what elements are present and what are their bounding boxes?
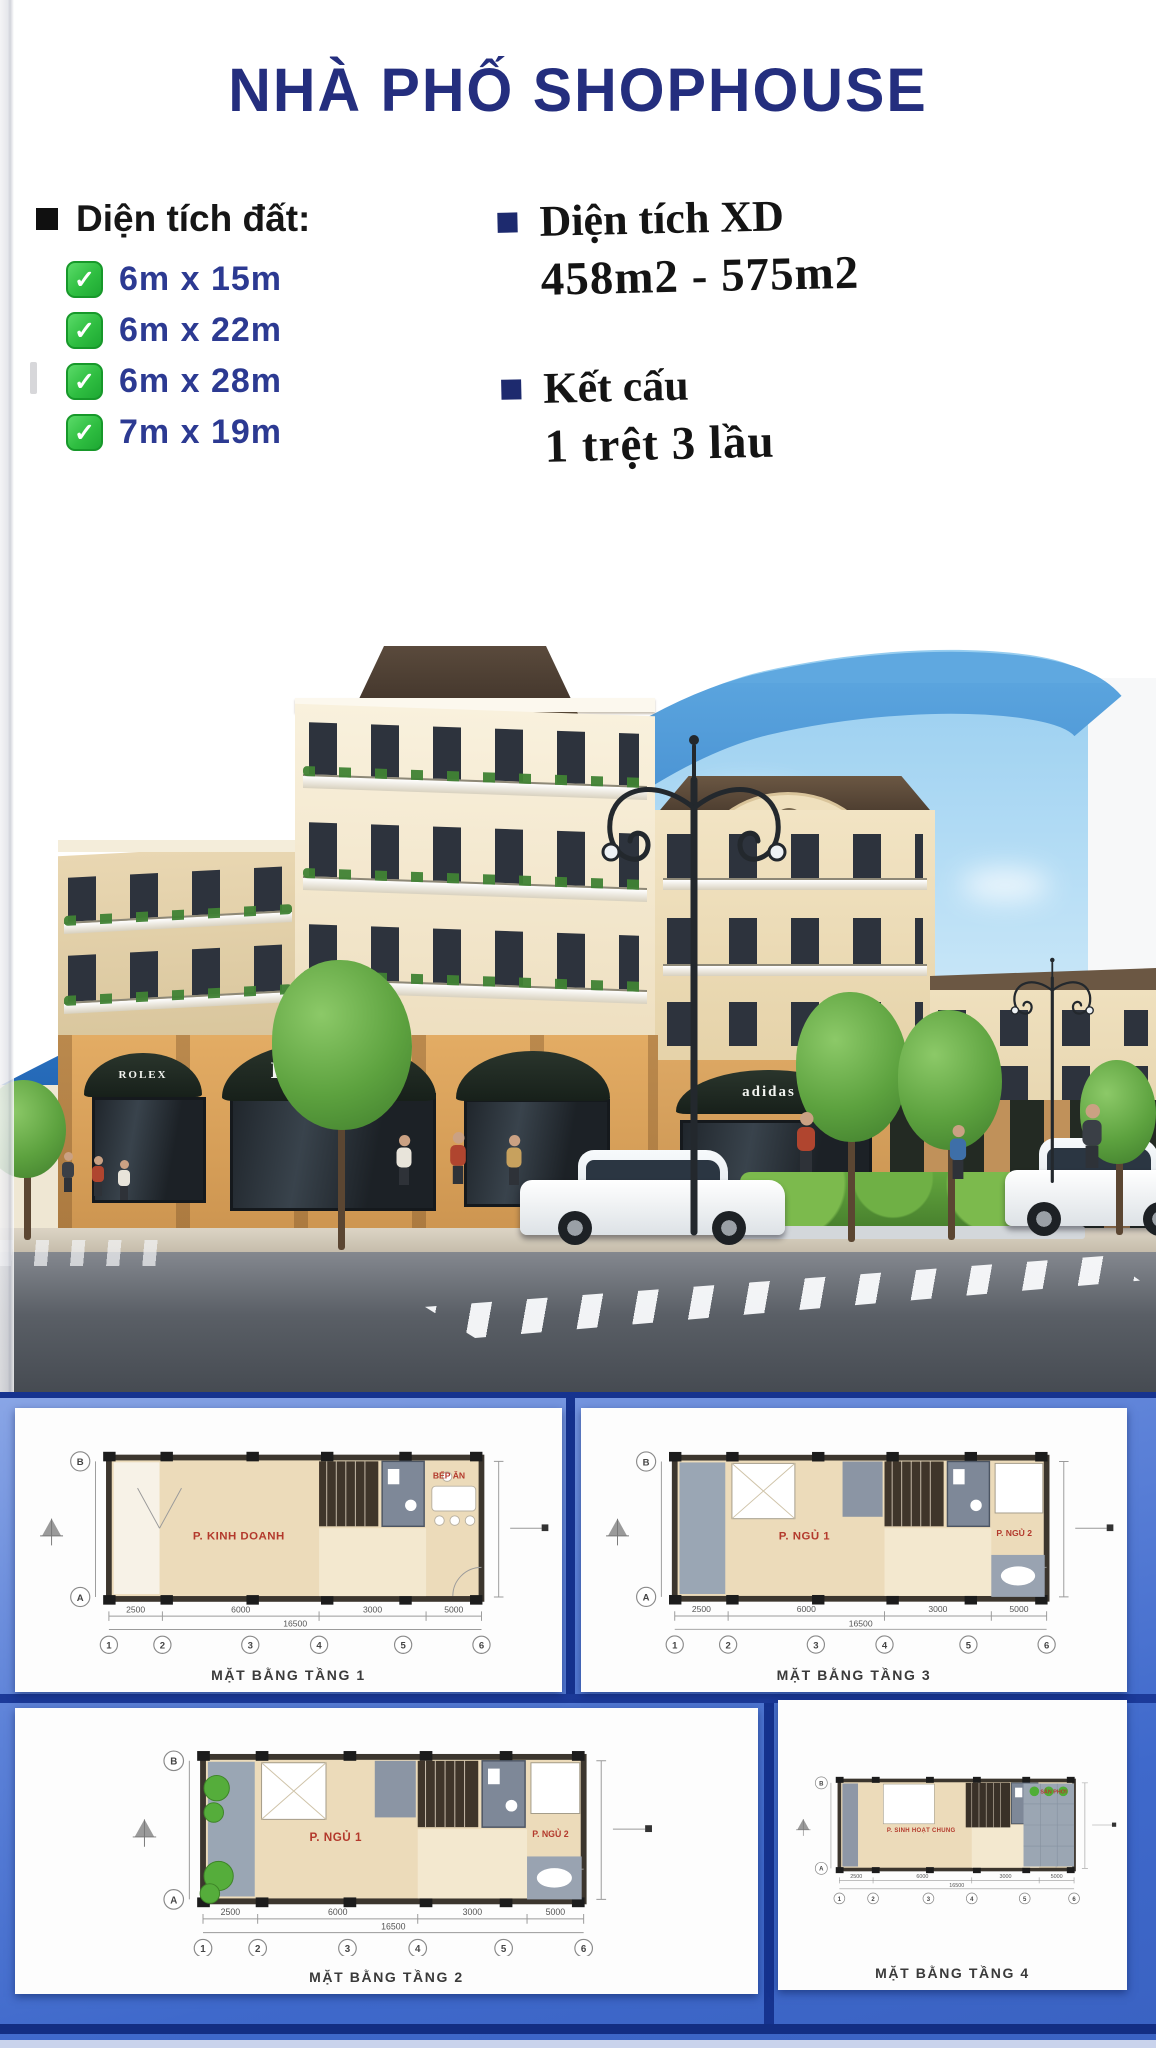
pedestrian [1082, 1104, 1101, 1168]
land-area-block: Diện tích đất: ✓ 6m x 15m ✓ 6m x 22m ✓ 6… [36, 198, 466, 458]
white-limousine [520, 1140, 785, 1245]
svg-text:B: B [643, 1457, 650, 1468]
construction-heading: Diện tích XD [539, 190, 785, 247]
structure-heading: Kết cấu [543, 360, 690, 414]
adidas-sign: adidas [742, 1084, 796, 1101]
svg-text:3000: 3000 [928, 1604, 947, 1614]
construction-heading-row: Diện tích XD [497, 183, 1098, 248]
svg-text:5000: 5000 [546, 1907, 566, 1917]
square-bullet-icon [36, 208, 58, 230]
flyer-page: NHÀ PHỐ SHOPHOUSE Diện tích đất: ✓ 6m x … [0, 0, 1156, 2048]
svg-text:A: A [170, 1895, 177, 1906]
pedestrian [507, 1135, 522, 1185]
svg-text:A: A [819, 1867, 824, 1873]
svg-text:6: 6 [581, 1944, 587, 1955]
svg-text:5000: 5000 [1009, 1604, 1028, 1614]
square-bullet-icon [497, 212, 517, 232]
svg-text:16500: 16500 [283, 1619, 307, 1629]
floor-plan-panel-t2: B A [15, 1708, 758, 1994]
svg-text:A: A [77, 1593, 84, 1604]
compass-icon [796, 1819, 810, 1836]
svg-text:3: 3 [248, 1641, 253, 1652]
land-size-value: 6m x 22m [119, 311, 282, 350]
divider-line [764, 1703, 774, 2030]
floor-plan-caption: MẶT BẰNG TẦNG 1 [15, 1667, 562, 1683]
render-photo: ROLEX ROLEX adidas [0, 540, 1156, 1392]
check-icon: ✓ [66, 312, 103, 349]
svg-text:BẾP ĂN: BẾP ĂN [433, 1471, 465, 1481]
svg-text:3000: 3000 [463, 1907, 483, 1917]
floor-plan-caption: MẶT BẰNG TẦNG 2 [15, 1969, 758, 1985]
svg-text:6000: 6000 [916, 1874, 928, 1880]
svg-text:5: 5 [400, 1641, 406, 1652]
svg-text:P. NGỦ 1: P. NGỦ 1 [779, 1530, 830, 1543]
svg-text:3: 3 [345, 1944, 351, 1955]
svg-text:B: B [819, 1781, 824, 1787]
svg-text:4: 4 [316, 1641, 322, 1652]
land-area-heading-row: Diện tích đất: [36, 198, 466, 240]
land-size-value: 6m x 28m [119, 362, 282, 401]
floor-plan-panel-t4: B A [778, 1700, 1127, 1990]
floor-plan-caption: MẶT BẰNG TẦNG 4 [778, 1965, 1127, 1981]
check-icon: ✓ [66, 363, 103, 400]
pedestrian [950, 1125, 966, 1179]
svg-text:2: 2 [725, 1640, 730, 1651]
svg-text:1: 1 [106, 1641, 112, 1652]
svg-text:5: 5 [501, 1944, 507, 1955]
divider-line [0, 2024, 1156, 2034]
svg-text:6: 6 [1044, 1640, 1049, 1651]
construction-block: Diện tích XD 458m2 - 575m2 Kết cấu 1 trệ… [497, 183, 1103, 475]
divider-line [566, 1398, 575, 1694]
pedestrian [397, 1135, 412, 1185]
svg-text:6000: 6000 [797, 1604, 816, 1614]
svg-text:4: 4 [882, 1640, 888, 1651]
svg-text:B: B [170, 1757, 177, 1768]
floor-plan-drawing: B A [21, 1712, 752, 1956]
svg-text:P. NGỦ 2: P. NGỦ 2 [996, 1527, 1032, 1538]
svg-text:2500: 2500 [221, 1907, 241, 1917]
svg-text:P. SINH HOẠT CHUNG: P. SINH HOẠT CHUNG [887, 1828, 956, 1834]
floor-plan-drawing: B A [587, 1412, 1121, 1654]
compass-icon [606, 1519, 629, 1546]
svg-text:5: 5 [966, 1640, 972, 1651]
awning-left-sign: ROLEX [118, 1069, 167, 1081]
structure-value: 1 trệt 3 lầu [544, 407, 1103, 474]
compass-icon [133, 1819, 156, 1846]
land-size-item: ✓ 6m x 28m [66, 356, 466, 407]
svg-text:4: 4 [415, 1944, 421, 1955]
svg-text:5000: 5000 [444, 1604, 463, 1614]
square-bullet-icon [501, 379, 521, 399]
floor-plan-caption: MẶT BẰNG TẦNG 3 [581, 1667, 1127, 1683]
svg-text:2500: 2500 [126, 1604, 145, 1614]
floor-plan-panel-t1: B A [15, 1408, 562, 1692]
land-size-value: 7m x 19m [119, 413, 282, 452]
compass-icon [40, 1519, 63, 1546]
land-size-list: ✓ 6m x 15m ✓ 6m x 22m ✓ 6m x 28m ✓ 7m x … [66, 254, 466, 458]
svg-text:5000: 5000 [1051, 1874, 1063, 1880]
svg-text:2: 2 [160, 1641, 165, 1652]
svg-text:A: A [643, 1593, 650, 1604]
scan-edge-artifact [0, 0, 14, 1392]
floor-plan-drawing: B A [784, 1704, 1121, 1952]
pedestrian [450, 1132, 466, 1184]
land-size-item: ✓ 7m x 19m [66, 407, 466, 458]
pedestrian [62, 1152, 74, 1192]
divider-line [0, 1392, 1156, 1398]
floor-plans-section: B A [0, 1392, 1156, 2048]
svg-text:P. NGỦ 1: P. NGỦ 1 [310, 1831, 362, 1844]
pedestrian [92, 1156, 104, 1196]
land-size-item: ✓ 6m x 22m [66, 305, 466, 356]
land-area-heading: Diện tích đất: [76, 198, 310, 240]
floor-plan-drawing: B A [21, 1412, 556, 1654]
check-icon: ✓ [66, 414, 103, 451]
svg-text:1: 1 [672, 1640, 678, 1651]
svg-text:16500: 16500 [381, 1922, 406, 1932]
svg-text:6: 6 [479, 1641, 484, 1652]
pedestrian [797, 1112, 815, 1172]
svg-text:6000: 6000 [328, 1907, 348, 1917]
svg-text:P. NGỦ 2: P. NGỦ 2 [532, 1828, 568, 1839]
svg-text:16500: 16500 [949, 1883, 964, 1889]
land-size-value: 6m x 15m [119, 260, 282, 299]
svg-text:16500: 16500 [849, 1618, 873, 1628]
svg-text:1: 1 [200, 1944, 206, 1955]
svg-text:3000: 3000 [999, 1874, 1011, 1880]
pedestrian [118, 1160, 130, 1200]
floor-plan-panel-t3: B A [581, 1408, 1127, 1692]
cloud [960, 870, 1050, 900]
page-title: NHÀ PHỐ SHOPHOUSE [0, 55, 1156, 126]
svg-text:B: B [77, 1457, 84, 1468]
scan-tick-artifact [30, 362, 37, 394]
crosswalk-left [0, 1240, 175, 1266]
svg-text:6000: 6000 [231, 1604, 250, 1614]
svg-text:2500: 2500 [692, 1604, 711, 1614]
check-icon: ✓ [66, 261, 103, 298]
land-size-item: ✓ 6m x 15m [66, 254, 466, 305]
building-parapet [58, 840, 298, 852]
svg-text:SÂN PHƠI: SÂN PHƠI [1040, 1789, 1067, 1796]
svg-text:3000: 3000 [363, 1604, 382, 1614]
svg-text:P. KINH DOANH: P. KINH DOANH [193, 1531, 285, 1543]
svg-text:2500: 2500 [850, 1874, 862, 1880]
tree [262, 960, 422, 1245]
svg-text:2: 2 [255, 1944, 261, 1955]
svg-text:3: 3 [813, 1640, 818, 1651]
page-bottom-edge [0, 2040, 1156, 2048]
